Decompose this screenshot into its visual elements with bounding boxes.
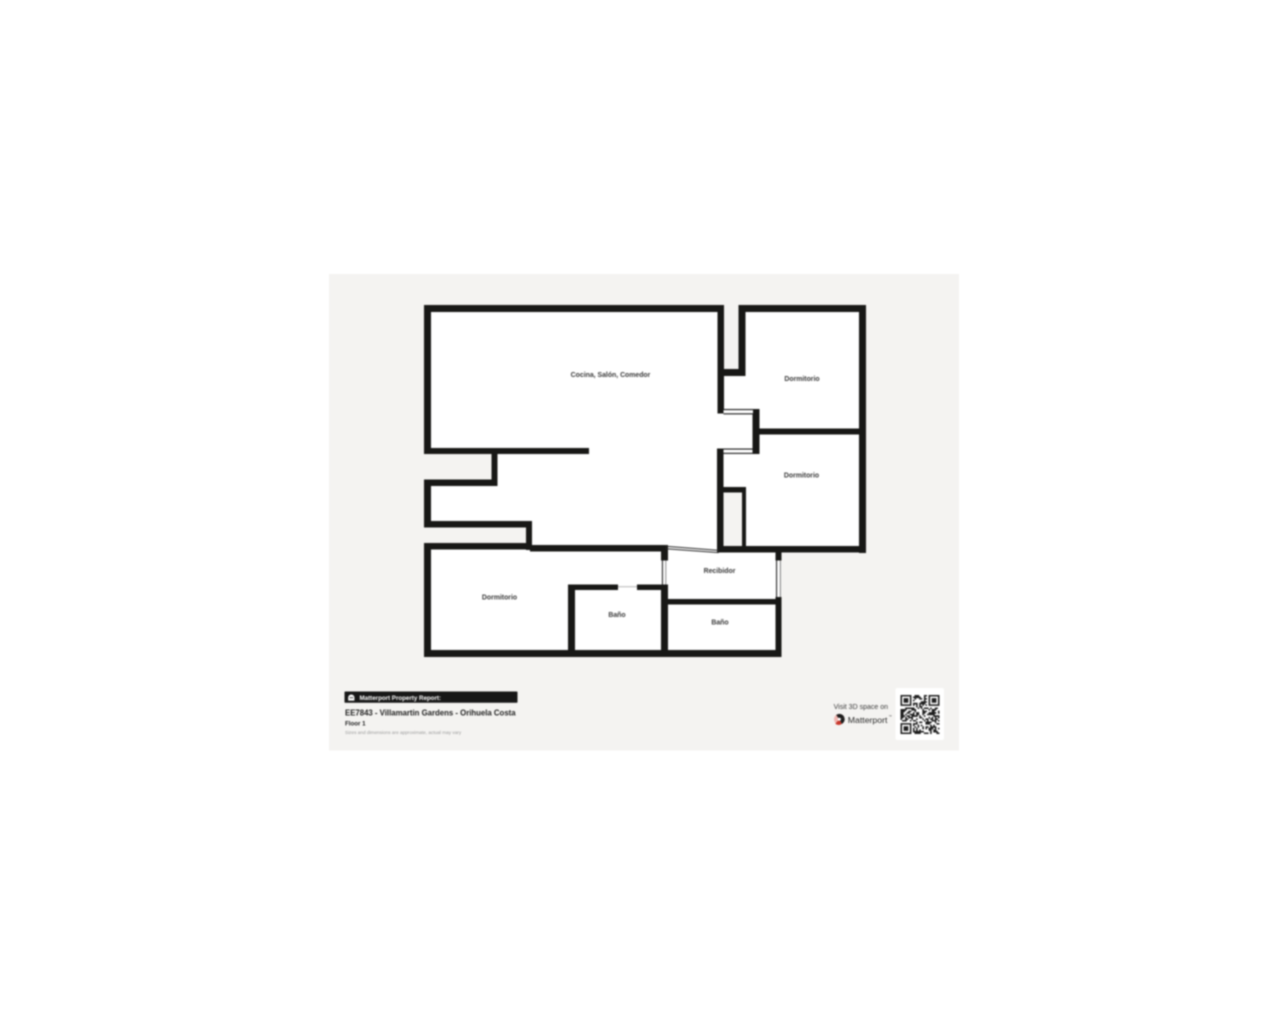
svg-text:EE7843 - Villamartin Gardens -: EE7843 - Villamartin Gardens - Orihuela … bbox=[345, 709, 516, 718]
svg-text:Matterport: Matterport bbox=[848, 715, 888, 725]
svg-text:Cocina, Salón, Comedor: Cocina, Salón, Comedor bbox=[571, 372, 651, 379]
svg-text:Floor 1: Floor 1 bbox=[345, 721, 366, 728]
svg-text:Dormitorio: Dormitorio bbox=[784, 376, 819, 383]
svg-text:Sizes and dimensions are appro: Sizes and dimensions are approximate, ac… bbox=[345, 730, 462, 735]
svg-text:Baño: Baño bbox=[711, 620, 728, 627]
svg-text:Dormitorio: Dormitorio bbox=[784, 473, 819, 480]
svg-text:Matterport Property Report:: Matterport Property Report: bbox=[360, 695, 441, 702]
svg-text:™: ™ bbox=[889, 715, 892, 719]
svg-text:Visit 3D space on: Visit 3D space on bbox=[834, 704, 888, 711]
svg-text:Recibidor: Recibidor bbox=[704, 568, 736, 575]
svg-text:Baño: Baño bbox=[608, 612, 625, 619]
svg-text:Dormitorio: Dormitorio bbox=[482, 595, 517, 602]
